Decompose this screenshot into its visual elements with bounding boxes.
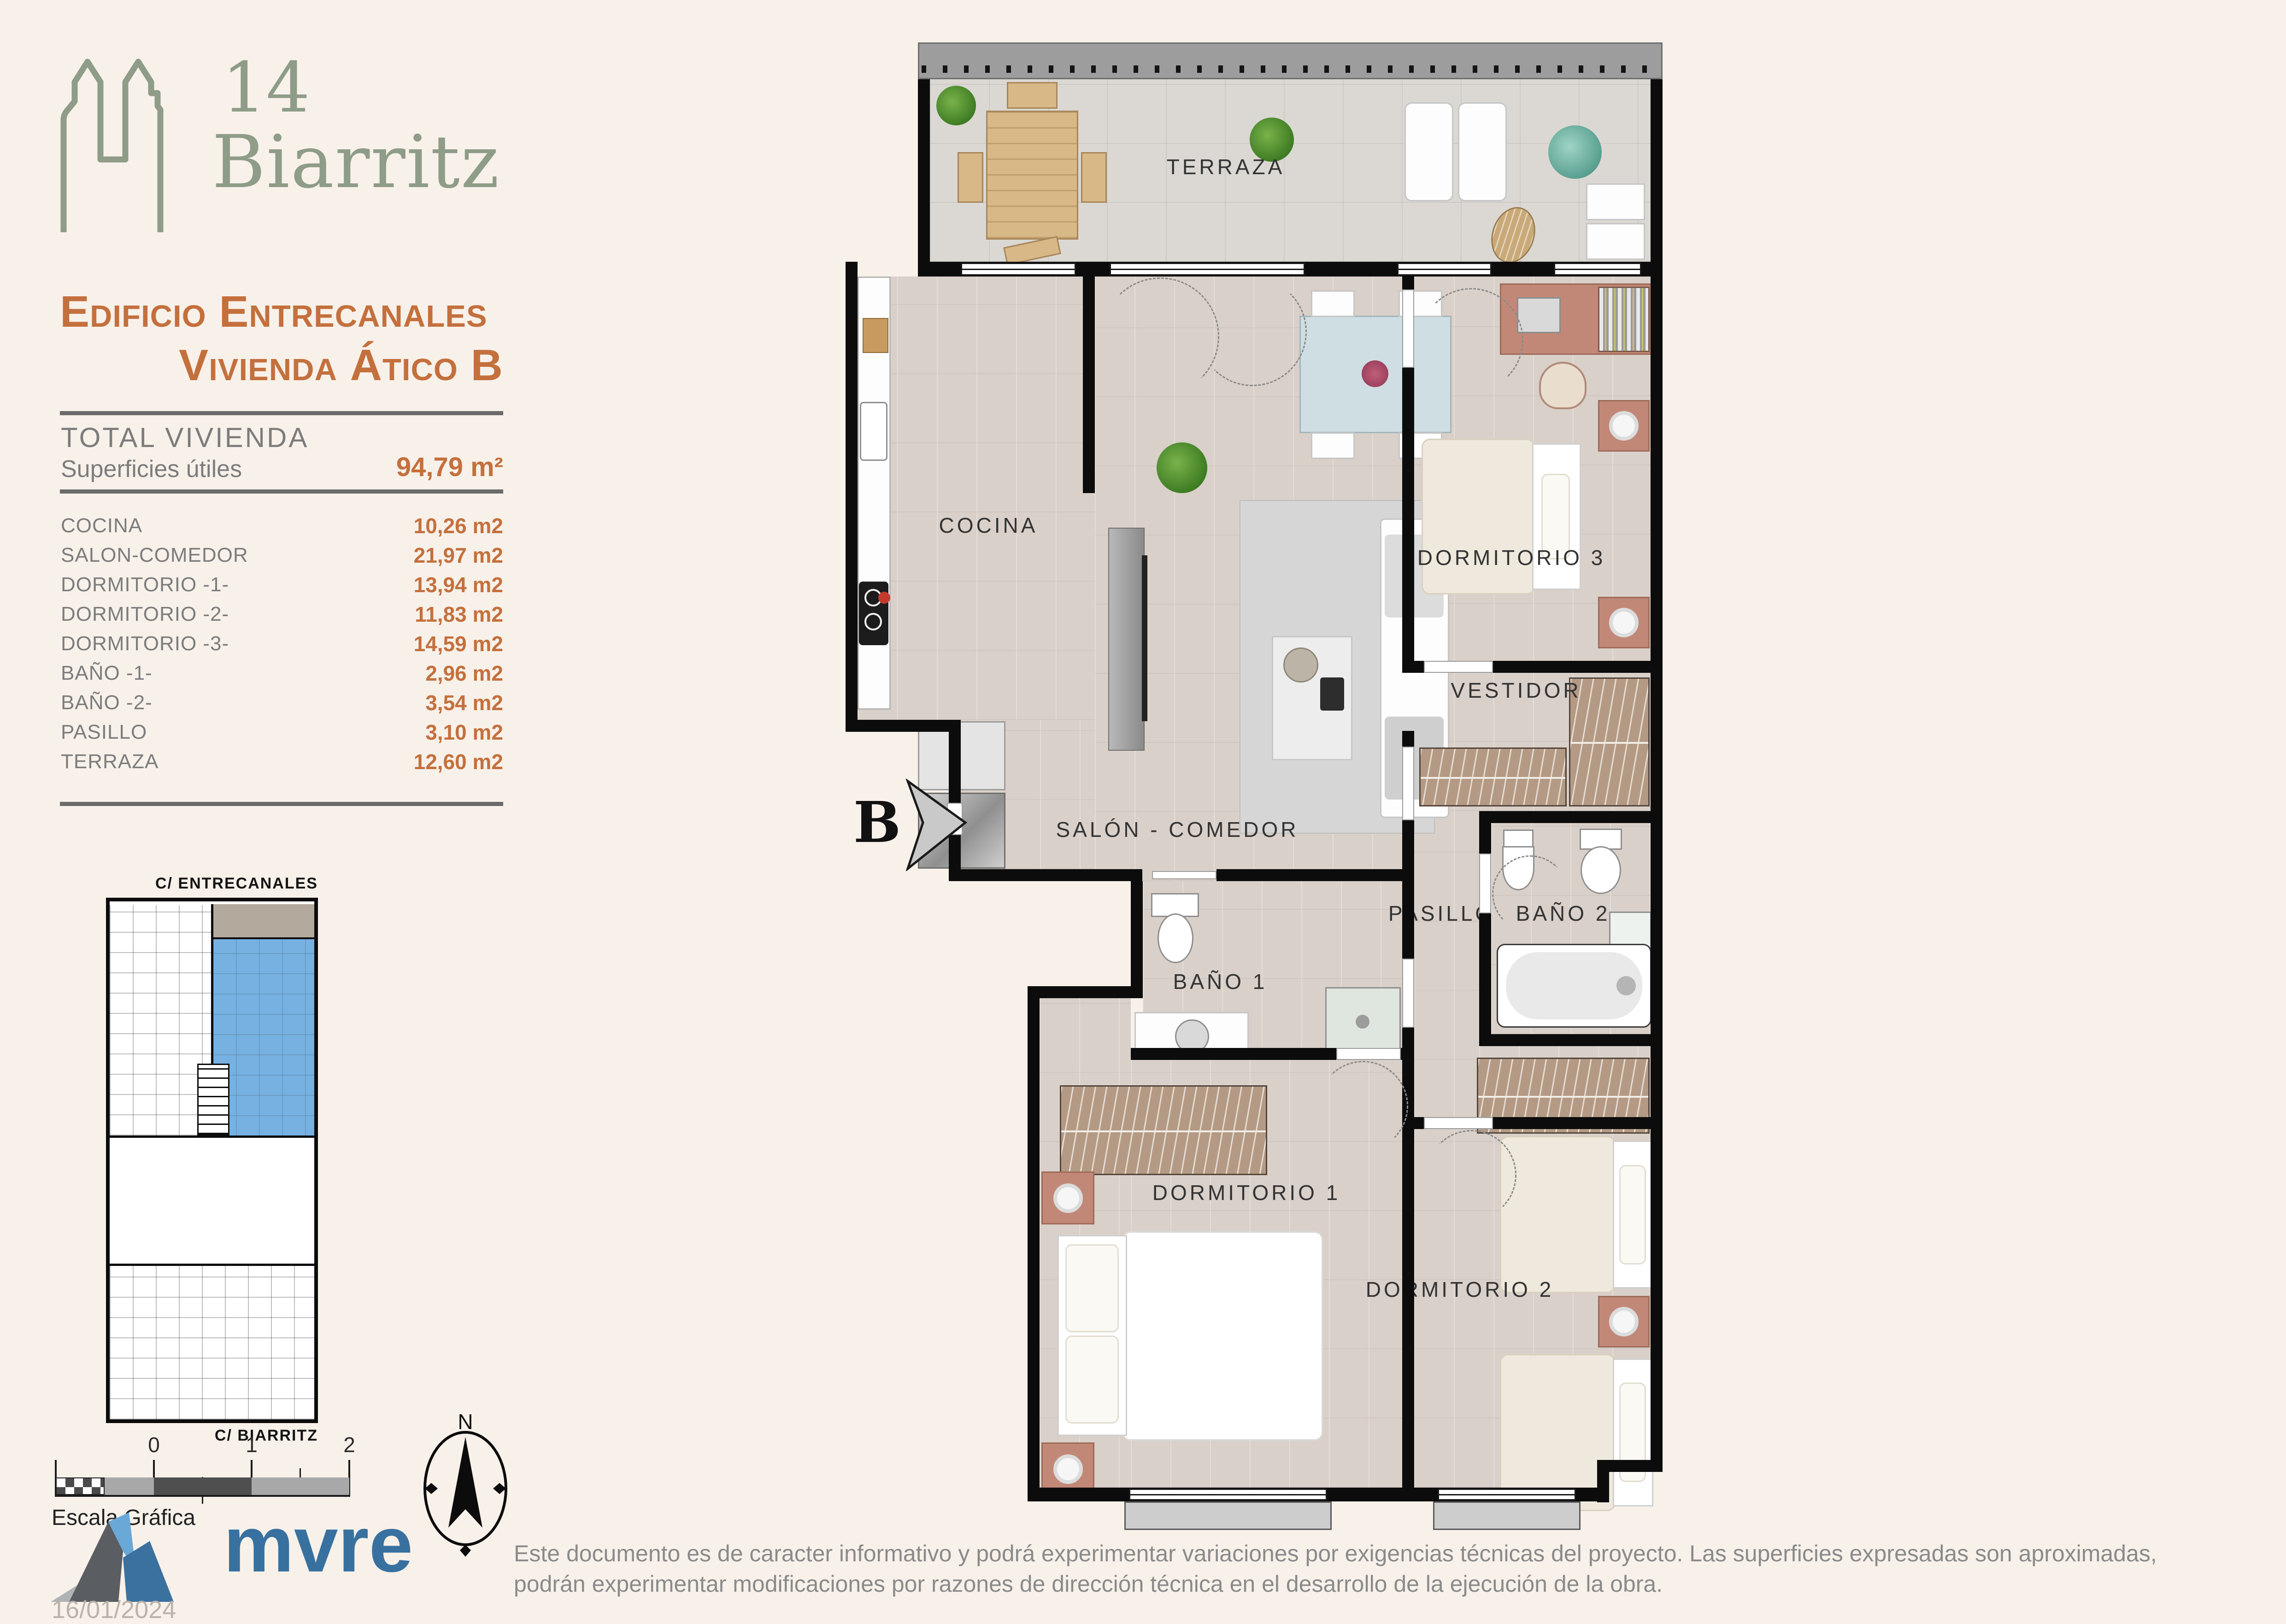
terrace-dining-table bbox=[986, 111, 1078, 240]
kitchen-sink bbox=[860, 402, 887, 461]
cooktop-burner bbox=[878, 592, 890, 604]
door bbox=[1402, 289, 1414, 368]
table-flowers bbox=[1362, 360, 1388, 387]
bed-pillow bbox=[1065, 1336, 1119, 1424]
terrace-chair bbox=[1081, 152, 1107, 203]
wall bbox=[1131, 881, 1143, 998]
wall bbox=[1479, 811, 1663, 823]
door bbox=[1424, 1117, 1493, 1129]
nightstand bbox=[1598, 1296, 1650, 1347]
wall bbox=[918, 79, 930, 263]
wardrobe bbox=[1060, 1085, 1267, 1175]
shower-drain bbox=[1356, 1015, 1369, 1029]
window bbox=[961, 263, 1076, 276]
wall bbox=[1028, 986, 1040, 1500]
wall bbox=[1216, 869, 1414, 881]
door-swing-arc bbox=[1318, 1061, 1408, 1151]
bed-duvet bbox=[1422, 439, 1535, 594]
dining-chair bbox=[1311, 432, 1355, 459]
wall bbox=[1651, 262, 1663, 1472]
bed-duvet bbox=[1122, 1231, 1323, 1441]
sun-lounger bbox=[1458, 102, 1507, 201]
desk-chair bbox=[1539, 362, 1587, 409]
terrace-sofa bbox=[1586, 183, 1645, 220]
plant bbox=[1548, 125, 1602, 179]
terrace-awning bbox=[918, 42, 1663, 79]
window bbox=[1110, 263, 1305, 276]
door bbox=[1479, 853, 1491, 913]
bed-pillow bbox=[1619, 1165, 1646, 1265]
room-label-salon: SALÓN - COMEDOR bbox=[1056, 817, 1299, 842]
window-sill bbox=[1433, 1501, 1581, 1530]
terrace-chair bbox=[958, 152, 983, 203]
room-label-bano1: BAÑO 1 bbox=[1173, 969, 1268, 994]
sun-lounger bbox=[1405, 102, 1453, 201]
room-label-vestidor: VESTIDOR bbox=[1451, 678, 1581, 703]
room-label-dormitorio3: DORMITORIO 3 bbox=[1417, 545, 1606, 570]
nightstand bbox=[1598, 597, 1650, 648]
plant bbox=[1157, 442, 1207, 493]
window bbox=[1554, 263, 1641, 276]
plant bbox=[936, 86, 976, 125]
room-label-dormitorio1: DORMITORIO 1 bbox=[1152, 1180, 1341, 1205]
wall bbox=[846, 262, 858, 732]
door-swing-arc bbox=[1419, 288, 1523, 392]
bookshelf bbox=[1598, 287, 1650, 352]
entrance-label: B bbox=[853, 789, 901, 855]
wall bbox=[1083, 277, 1095, 493]
terrace-sofa bbox=[1586, 223, 1645, 260]
bathtub-drain bbox=[1616, 976, 1636, 995]
door bbox=[1152, 871, 1216, 879]
wall bbox=[1651, 79, 1663, 263]
window bbox=[1397, 263, 1492, 276]
toilet-bowl bbox=[1581, 846, 1621, 894]
tv-screen bbox=[1142, 555, 1147, 721]
tablet bbox=[1320, 677, 1344, 711]
entrance-arrow-icon bbox=[905, 779, 970, 871]
dining-chair bbox=[1311, 290, 1355, 317]
room-label-dormitorio2: DORMITORIO 2 bbox=[1366, 1277, 1554, 1302]
bed-duvet bbox=[1500, 1136, 1616, 1293]
window bbox=[1438, 1489, 1576, 1500]
nightstand bbox=[1041, 1171, 1094, 1224]
door bbox=[1424, 661, 1493, 673]
room-label-cocina: COCINA bbox=[939, 513, 1038, 538]
door-swing-arc bbox=[1492, 855, 1569, 932]
awning-dotted-line bbox=[922, 65, 1659, 73]
wall bbox=[846, 720, 961, 732]
door bbox=[1402, 747, 1414, 820]
tv-unit bbox=[1108, 528, 1145, 751]
wall bbox=[1028, 986, 1143, 998]
laptop bbox=[1517, 297, 1561, 333]
door-swing-arc bbox=[1426, 1130, 1516, 1220]
pasillo-floor bbox=[1414, 811, 1479, 1129]
terrace-chair bbox=[1007, 82, 1058, 109]
cooktop-burner bbox=[864, 613, 882, 630]
bed-pillow bbox=[1065, 1244, 1119, 1332]
cutting-board bbox=[863, 318, 888, 353]
window-sill bbox=[1124, 1501, 1332, 1530]
door bbox=[1402, 959, 1414, 1028]
toilet-bowl bbox=[1158, 913, 1193, 963]
room-label-terraza: TERRAZA bbox=[1167, 154, 1285, 179]
cocina-floor bbox=[858, 277, 1095, 720]
window bbox=[1129, 1489, 1327, 1500]
wardrobe bbox=[1419, 747, 1567, 806]
door bbox=[1336, 1048, 1401, 1060]
wall bbox=[1597, 1460, 1663, 1472]
nightstand bbox=[1598, 400, 1650, 452]
floor-plan: TERRAZA COCINA SALÓN - COMEDOR bbox=[0, 0, 2286, 1617]
wall bbox=[1479, 1034, 1663, 1046]
serving-plate bbox=[1283, 647, 1318, 683]
door-swing-arc bbox=[1198, 277, 1307, 386]
wall bbox=[949, 869, 1142, 881]
